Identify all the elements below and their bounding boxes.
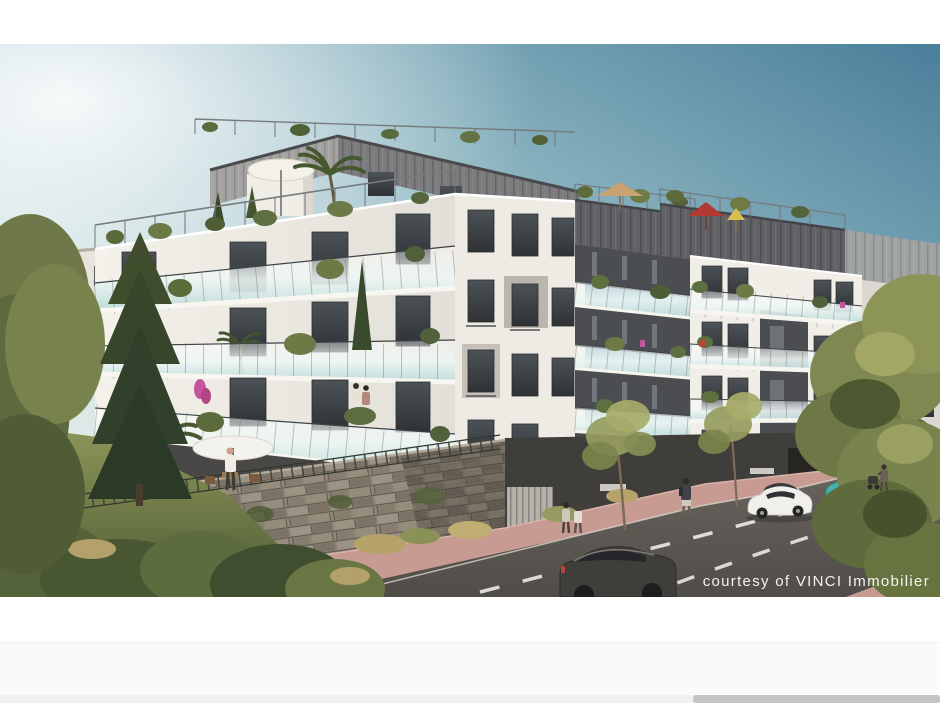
- page: courtesy of VINCI Immobilier: [0, 0, 940, 703]
- photo-credit: courtesy of VINCI Immobilier: [703, 573, 930, 590]
- horizontal-scrollbar-thumb[interactable]: [693, 695, 940, 703]
- rendering-scene: [0, 44, 940, 597]
- faint-band: [0, 642, 940, 697]
- property-rendering-photo: courtesy of VINCI Immobilier: [0, 44, 940, 597]
- horizontal-scrollbar-track[interactable]: [0, 695, 940, 703]
- page-bottom-whitespace: [0, 597, 940, 703]
